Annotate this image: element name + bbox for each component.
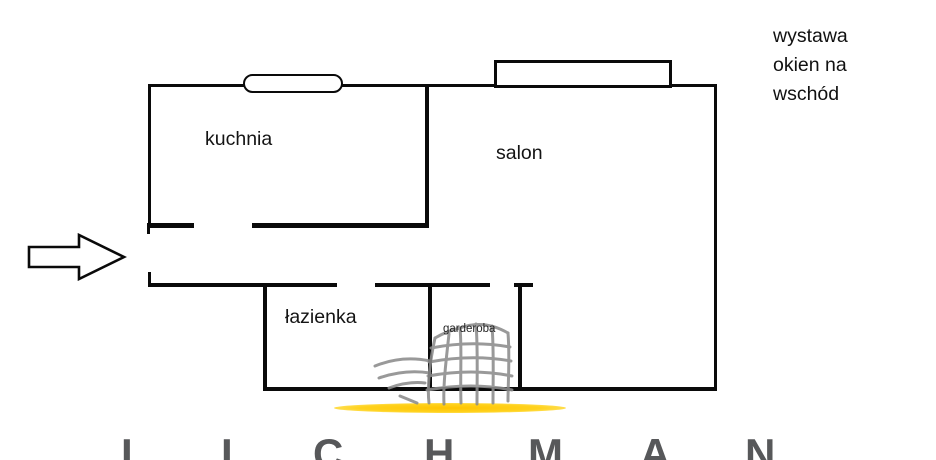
brand-wordmark-letter-c: C: [313, 433, 343, 460]
entrance-arrow-icon: [27, 233, 127, 286]
wall-hall-bottom-left: [148, 283, 337, 287]
room-label-wardrobe: garderoba: [443, 323, 495, 335]
orientation-note: wystawa okien na wschód: [773, 22, 848, 109]
orientation-note-line2: okien na: [773, 51, 848, 80]
brand-wordmark-letter-a: A: [640, 433, 670, 460]
wall-entry-tick-lower: [148, 272, 151, 284]
room-label-kitchen: kuchnia: [205, 128, 272, 151]
wall-bathroom-left: [263, 283, 267, 391]
wall-kitchen-left: [148, 84, 151, 228]
wall-kitchen-salon-divider: [425, 84, 429, 228]
wall-entry-tick-upper: [147, 223, 150, 234]
brand-wordmark-letter-n: N: [745, 433, 775, 460]
wall-kitchen-bottom-left: [147, 223, 194, 228]
orientation-note-line3: wschód: [773, 80, 848, 109]
brand-wordmark-letter-i: I: [221, 433, 233, 460]
brand-wordmark-letter-m: M: [528, 433, 563, 460]
wall-hall-bottom-stub: [514, 283, 533, 287]
brand-wordmark-letter-l: L: [121, 433, 147, 460]
kitchen-window: [243, 74, 343, 93]
wall-hall-bottom-mid: [375, 283, 490, 287]
orientation-note-line1: wystawa: [773, 22, 848, 51]
wall-kitchen-bottom-right: [252, 223, 429, 228]
floor-plan-canvas: kuchnia salon łazienka garderoba wystawa…: [0, 0, 936, 460]
wall-right: [714, 84, 717, 391]
room-label-salon: salon: [496, 142, 543, 165]
salon-window: [494, 60, 672, 88]
room-label-bathroom: łazienka: [285, 306, 357, 329]
brand-wordmark-letter-h: H: [424, 433, 454, 460]
